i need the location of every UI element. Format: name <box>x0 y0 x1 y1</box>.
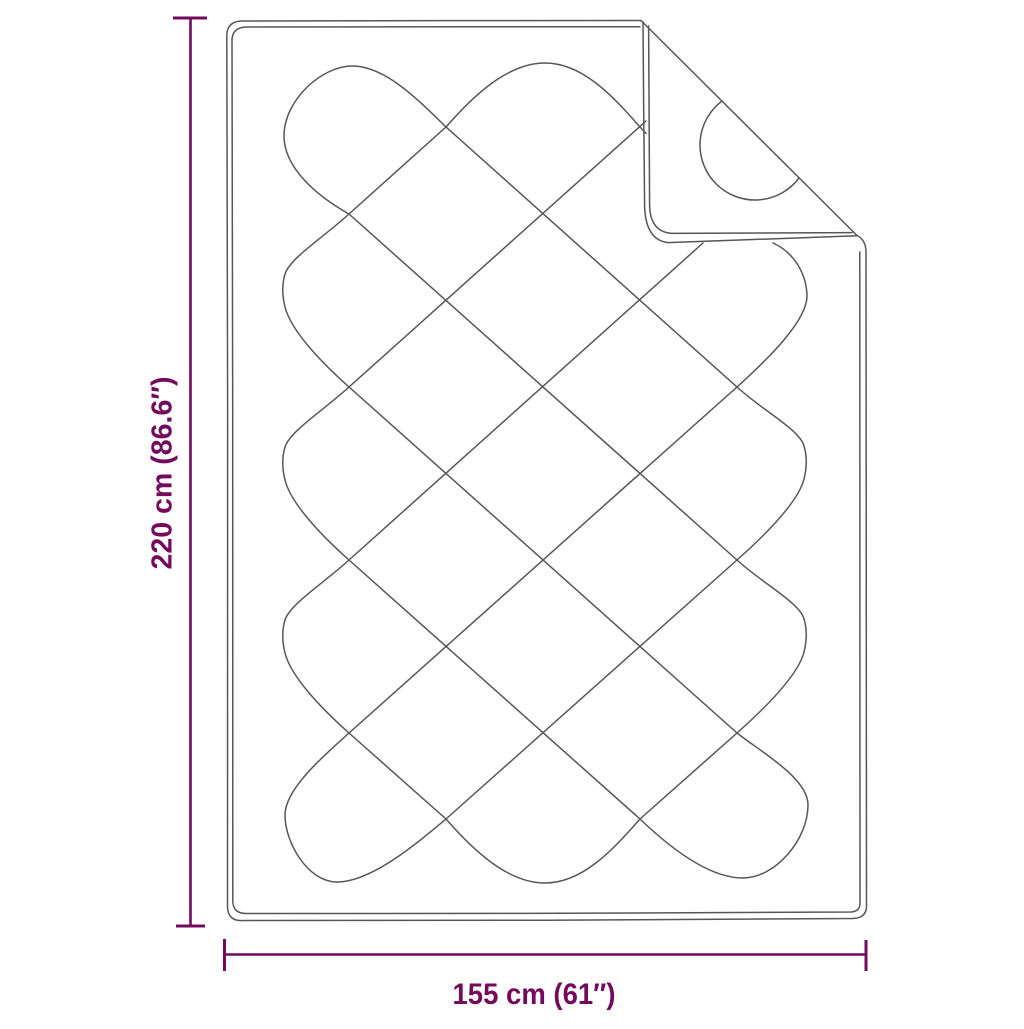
svg-text:155 cm (61″): 155 cm (61″) <box>453 978 616 1011</box>
svg-text:220 cm (86.6″): 220 cm (86.6″) <box>147 377 179 570</box>
